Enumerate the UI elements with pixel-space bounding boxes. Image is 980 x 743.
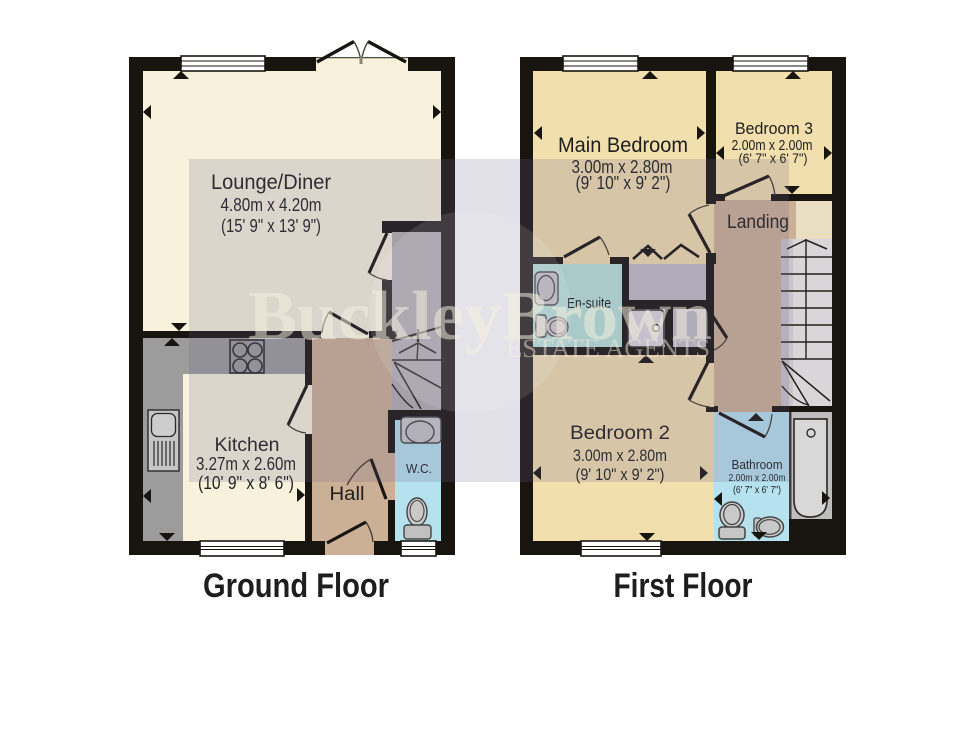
svg-text:(6' 7" x 6' 7"): (6' 7" x 6' 7")	[733, 484, 781, 496]
svg-text:Ground Floor: Ground Floor	[203, 567, 389, 605]
svg-text:Main Bedroom: Main Bedroom	[558, 133, 688, 157]
svg-text:First Floor: First Floor	[614, 567, 753, 605]
svg-text:Hall: Hall	[330, 484, 365, 505]
svg-text:ESTATE AGENTS: ESTATE AGENTS	[506, 334, 710, 363]
svg-text:Bedroom 3: Bedroom 3	[735, 119, 813, 138]
